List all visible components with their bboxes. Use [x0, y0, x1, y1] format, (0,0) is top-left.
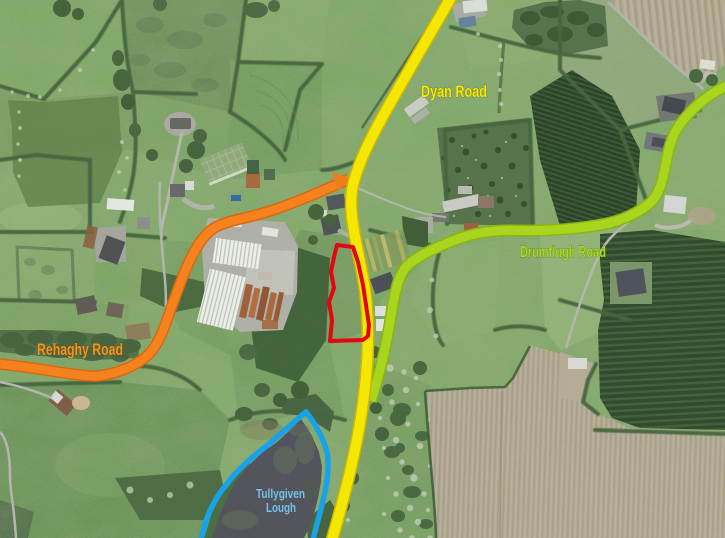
svg-text:Dyan Road: Dyan Road	[421, 83, 487, 101]
svg-text:Lough: Lough	[266, 500, 296, 515]
svg-text:Drumflugh Road: Drumflugh Road	[520, 244, 606, 261]
svg-text:Rehaghy Road: Rehaghy Road	[37, 341, 123, 359]
svg-text:Tullygiven: Tullygiven	[256, 486, 305, 501]
